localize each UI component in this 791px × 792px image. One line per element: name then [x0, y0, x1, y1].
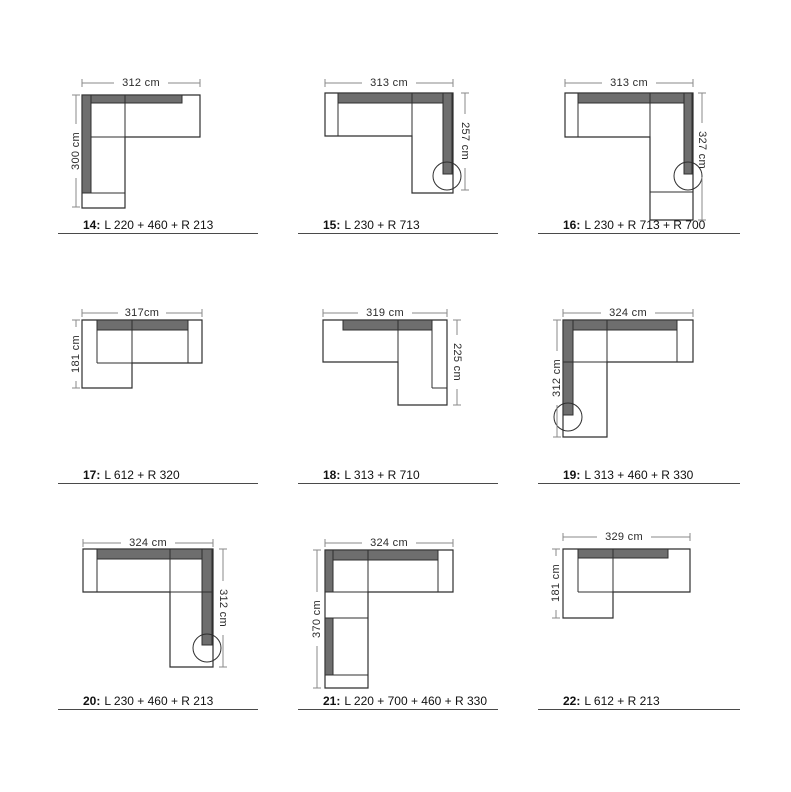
- item-18-label: 18:L 313 + R 710: [298, 468, 498, 484]
- height-dimension: 312 cm: [551, 320, 563, 437]
- sofa-17-diagram: 317cm 181 cm: [70, 307, 202, 388]
- sofa-19-diagram: 324 cm 312 cm: [551, 307, 693, 437]
- width-dimension: 324 cm: [563, 307, 693, 319]
- item-number: 15:: [323, 218, 340, 232]
- sofa-16-diagram: 313 cm 327 cm: [565, 77, 708, 220]
- backrest-strip-top: [578, 549, 668, 558]
- height-dimension: 225 cm: [451, 320, 463, 405]
- seam-lines: [82, 95, 200, 208]
- item-22-label: 22:L 612 + R 213: [538, 694, 740, 710]
- dimension-label: 324 cm: [609, 307, 647, 319]
- width-dimension: 317cm: [82, 307, 202, 319]
- item-17-label: 17:L 612 + R 320: [58, 468, 258, 484]
- item-number: 17:: [83, 468, 100, 482]
- seam-lines: [325, 550, 438, 688]
- sofa-outline: [563, 549, 690, 618]
- item-number: 19:: [563, 468, 580, 482]
- backrest-strip-side: [202, 549, 212, 645]
- height-dimension: 370 cm: [311, 550, 323, 688]
- item-number: 18:: [323, 468, 340, 482]
- sofa-22-diagram: 329 cm 181 cm: [550, 531, 690, 618]
- dimension-label: 319 cm: [366, 307, 404, 319]
- dimension-label: 313 cm: [370, 77, 408, 89]
- item-19-label: 19:L 313 + 460 + R 330: [538, 468, 740, 484]
- sofa-15-diagram: 313 cm 257 cm: [325, 77, 471, 193]
- seam-lines: [338, 93, 412, 193]
- item-15-label: 15:L 230 + R 713: [298, 218, 498, 234]
- height-dimension: 181 cm: [550, 549, 562, 618]
- sofa-diagrams-canvas: 312 cm 300 cm 313 cm 257 cm 313 cm: [0, 0, 791, 792]
- seam-lines: [97, 549, 213, 667]
- sofa-18-diagram: 319 cm 225 cm: [323, 307, 463, 405]
- dimension-label: 324 cm: [129, 537, 167, 549]
- item-20-label: 20:L 230 + 460 + R 213: [58, 694, 258, 710]
- backrest-strip-top: [97, 320, 188, 330]
- sofa-outline: [563, 320, 693, 437]
- item-14-label: 14:L 220 + 460 + R 213: [58, 218, 258, 234]
- dimension-label: 312 cm: [122, 77, 160, 89]
- dimension-label: 324 cm: [370, 537, 408, 549]
- dimension-label: 300 cm: [70, 132, 82, 170]
- seam-lines: [578, 549, 613, 618]
- sofa-20-diagram: 324 cm 312 cm: [83, 537, 229, 667]
- backrest-strip-top: [97, 549, 212, 559]
- sofa-21-diagram: 324 cm 370 cm: [311, 537, 453, 688]
- dimension-label: 181 cm: [70, 335, 82, 373]
- backrest-strip-top: [563, 320, 677, 330]
- item-21-label: 21:L 220 + 700 + 460 + R 330: [298, 694, 498, 710]
- dimension-label: 370 cm: [311, 600, 323, 638]
- item-config: L 230 + 460 + R 213: [104, 694, 213, 708]
- seam-lines: [563, 320, 677, 437]
- dimension-label: 327 cm: [696, 131, 708, 169]
- backrest-strip-top: [338, 93, 452, 103]
- item-config: L 313 + 460 + R 330: [584, 468, 693, 482]
- item-config: L 313 + R 710: [344, 468, 419, 482]
- sofa-14-diagram: 312 cm 300 cm: [70, 77, 200, 208]
- width-dimension: 329 cm: [563, 531, 690, 543]
- item-number: 20:: [83, 694, 100, 708]
- sofa-configuration-catalog-page: 312 cm 300 cm 313 cm 257 cm 313 cm: [0, 0, 791, 792]
- seam-lines: [578, 93, 693, 220]
- width-dimension: 324 cm: [325, 537, 453, 549]
- item-config: L 220 + 700 + 460 + R 330: [344, 694, 487, 708]
- seam-lines: [398, 320, 447, 405]
- sofa-outline: [565, 93, 693, 220]
- item-config: L 230 + R 713 + R 700: [584, 218, 705, 232]
- backrest-strip-side: [82, 95, 91, 193]
- width-dimension: 324 cm: [83, 537, 213, 549]
- width-dimension: 313 cm: [325, 77, 453, 89]
- backrest-strip-side-upper: [325, 550, 333, 592]
- width-dimension: 313 cm: [565, 77, 693, 89]
- dimension-label: 313 cm: [610, 77, 648, 89]
- backrest-strip-top: [343, 320, 432, 330]
- item-number: 14:: [83, 218, 100, 232]
- sofa-outline: [325, 93, 453, 193]
- backrest-strip-top: [333, 550, 438, 560]
- sofa-outline: [323, 320, 447, 405]
- item-config: L 612 + R 213: [584, 694, 659, 708]
- dimension-label: 312 cm: [551, 359, 563, 397]
- item-number: 22:: [563, 694, 580, 708]
- dimension-label: 317cm: [125, 307, 160, 319]
- item-number: 16:: [563, 218, 580, 232]
- item-config: L 612 + R 320: [104, 468, 179, 482]
- height-dimension: 327 cm: [696, 93, 708, 220]
- sofa-outline: [82, 95, 200, 208]
- dimension-label: 181 cm: [550, 564, 562, 602]
- height-dimension: 312 cm: [217, 549, 229, 667]
- backrest-strip-top: [82, 95, 182, 103]
- width-dimension: 319 cm: [323, 307, 447, 319]
- sofa-outline: [325, 550, 453, 688]
- item-16-label: 16:L 230 + R 713 + R 700: [538, 218, 740, 234]
- item-config: L 230 + R 713: [344, 218, 419, 232]
- dimension-label: 329 cm: [605, 531, 643, 543]
- item-number: 21:: [323, 694, 340, 708]
- width-dimension: 312 cm: [82, 77, 200, 89]
- dimension-label: 225 cm: [451, 343, 463, 381]
- backrest-strip-side: [563, 320, 573, 415]
- dimension-label: 257 cm: [459, 122, 471, 160]
- item-config: L 220 + 460 + R 213: [104, 218, 213, 232]
- backrest-strip-top: [578, 93, 692, 103]
- height-dimension: 181 cm: [70, 320, 82, 388]
- height-dimension: 300 cm: [70, 95, 82, 207]
- dimension-label: 312 cm: [217, 589, 229, 627]
- backrest-strip-side-lower: [325, 618, 333, 675]
